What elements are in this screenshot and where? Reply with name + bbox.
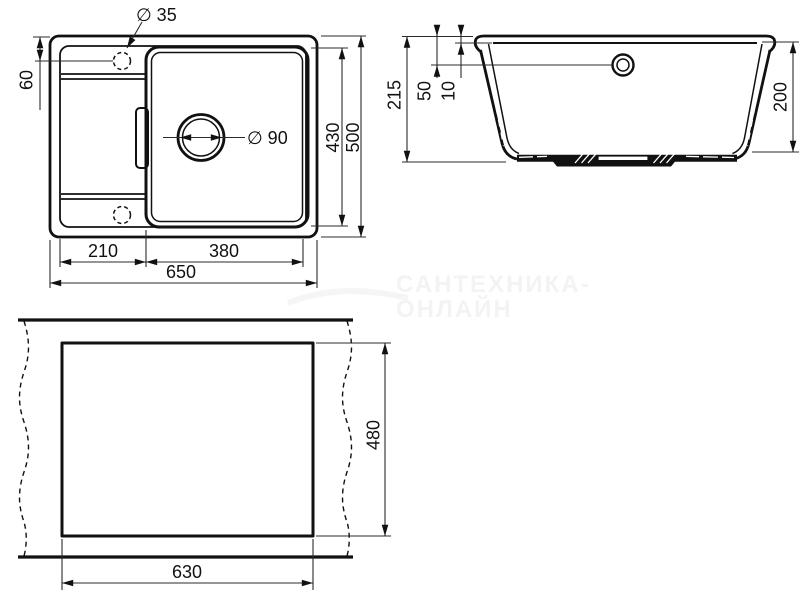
cutout-dim-extensions <box>62 343 391 590</box>
faucet-offset-extensions <box>33 37 113 61</box>
drainboard-ribs <box>61 74 146 199</box>
technical-drawing-page: САНТЕХНИКА- ОНЛАЙН ∅ 35 60 ∅ 90 430 500 <box>0 0 800 594</box>
watermark-line2: ОНЛАЙН <box>396 295 513 323</box>
dim-cutout-width: 630 <box>172 562 202 582</box>
plan-view: ∅ 35 60 ∅ 90 430 500 210 380 650 <box>17 5 367 288</box>
technical-drawing-canvas: САНТЕХНИКА- ОНЛАЙН ∅ 35 60 ∅ 90 430 500 <box>0 0 800 594</box>
watermark-line1: САНТЕХНИКА- <box>396 271 591 298</box>
cutout-view: 480 630 <box>18 320 391 590</box>
dim-faucet-offset: 60 <box>17 70 37 90</box>
dim-bowl-length: 430 <box>323 122 343 152</box>
dim-faucet-hole-diameter: ∅ 35 <box>136 5 177 25</box>
overflow-hole-inner <box>617 59 629 71</box>
dim-cutout-height: 480 <box>364 420 384 450</box>
break-line-left <box>20 321 29 556</box>
faucet-hole-bottom <box>114 207 131 224</box>
overflow-hole-outer <box>613 55 634 76</box>
section-view: 215 50 10 200 <box>385 25 800 167</box>
bowl-wall-right-outer <box>734 50 770 159</box>
drain-slot <box>598 156 648 161</box>
dim-drain-diameter: ∅ 90 <box>247 128 288 148</box>
dim-overall-width: 650 <box>166 262 196 282</box>
faucet-hole-top <box>114 53 131 70</box>
break-line-right <box>343 321 352 556</box>
dim-overflow-offset: 50 <box>415 81 435 101</box>
watermark: САНТЕХНИКА- ОНЛАЙН <box>288 271 591 323</box>
dim-drainboard-width: 210 <box>88 241 118 261</box>
cutout-rectangle <box>62 343 313 536</box>
dim-overall-depth: 500 <box>343 122 363 152</box>
dim-overall-height: 215 <box>385 80 405 110</box>
watermark-swoosh <box>288 291 408 303</box>
dim-bowl-depth: 200 <box>771 82 791 112</box>
dim-rim-height: 10 <box>439 81 459 101</box>
dim-bowl-width: 380 <box>209 241 239 261</box>
bowl-wall-left-outer <box>481 50 518 159</box>
